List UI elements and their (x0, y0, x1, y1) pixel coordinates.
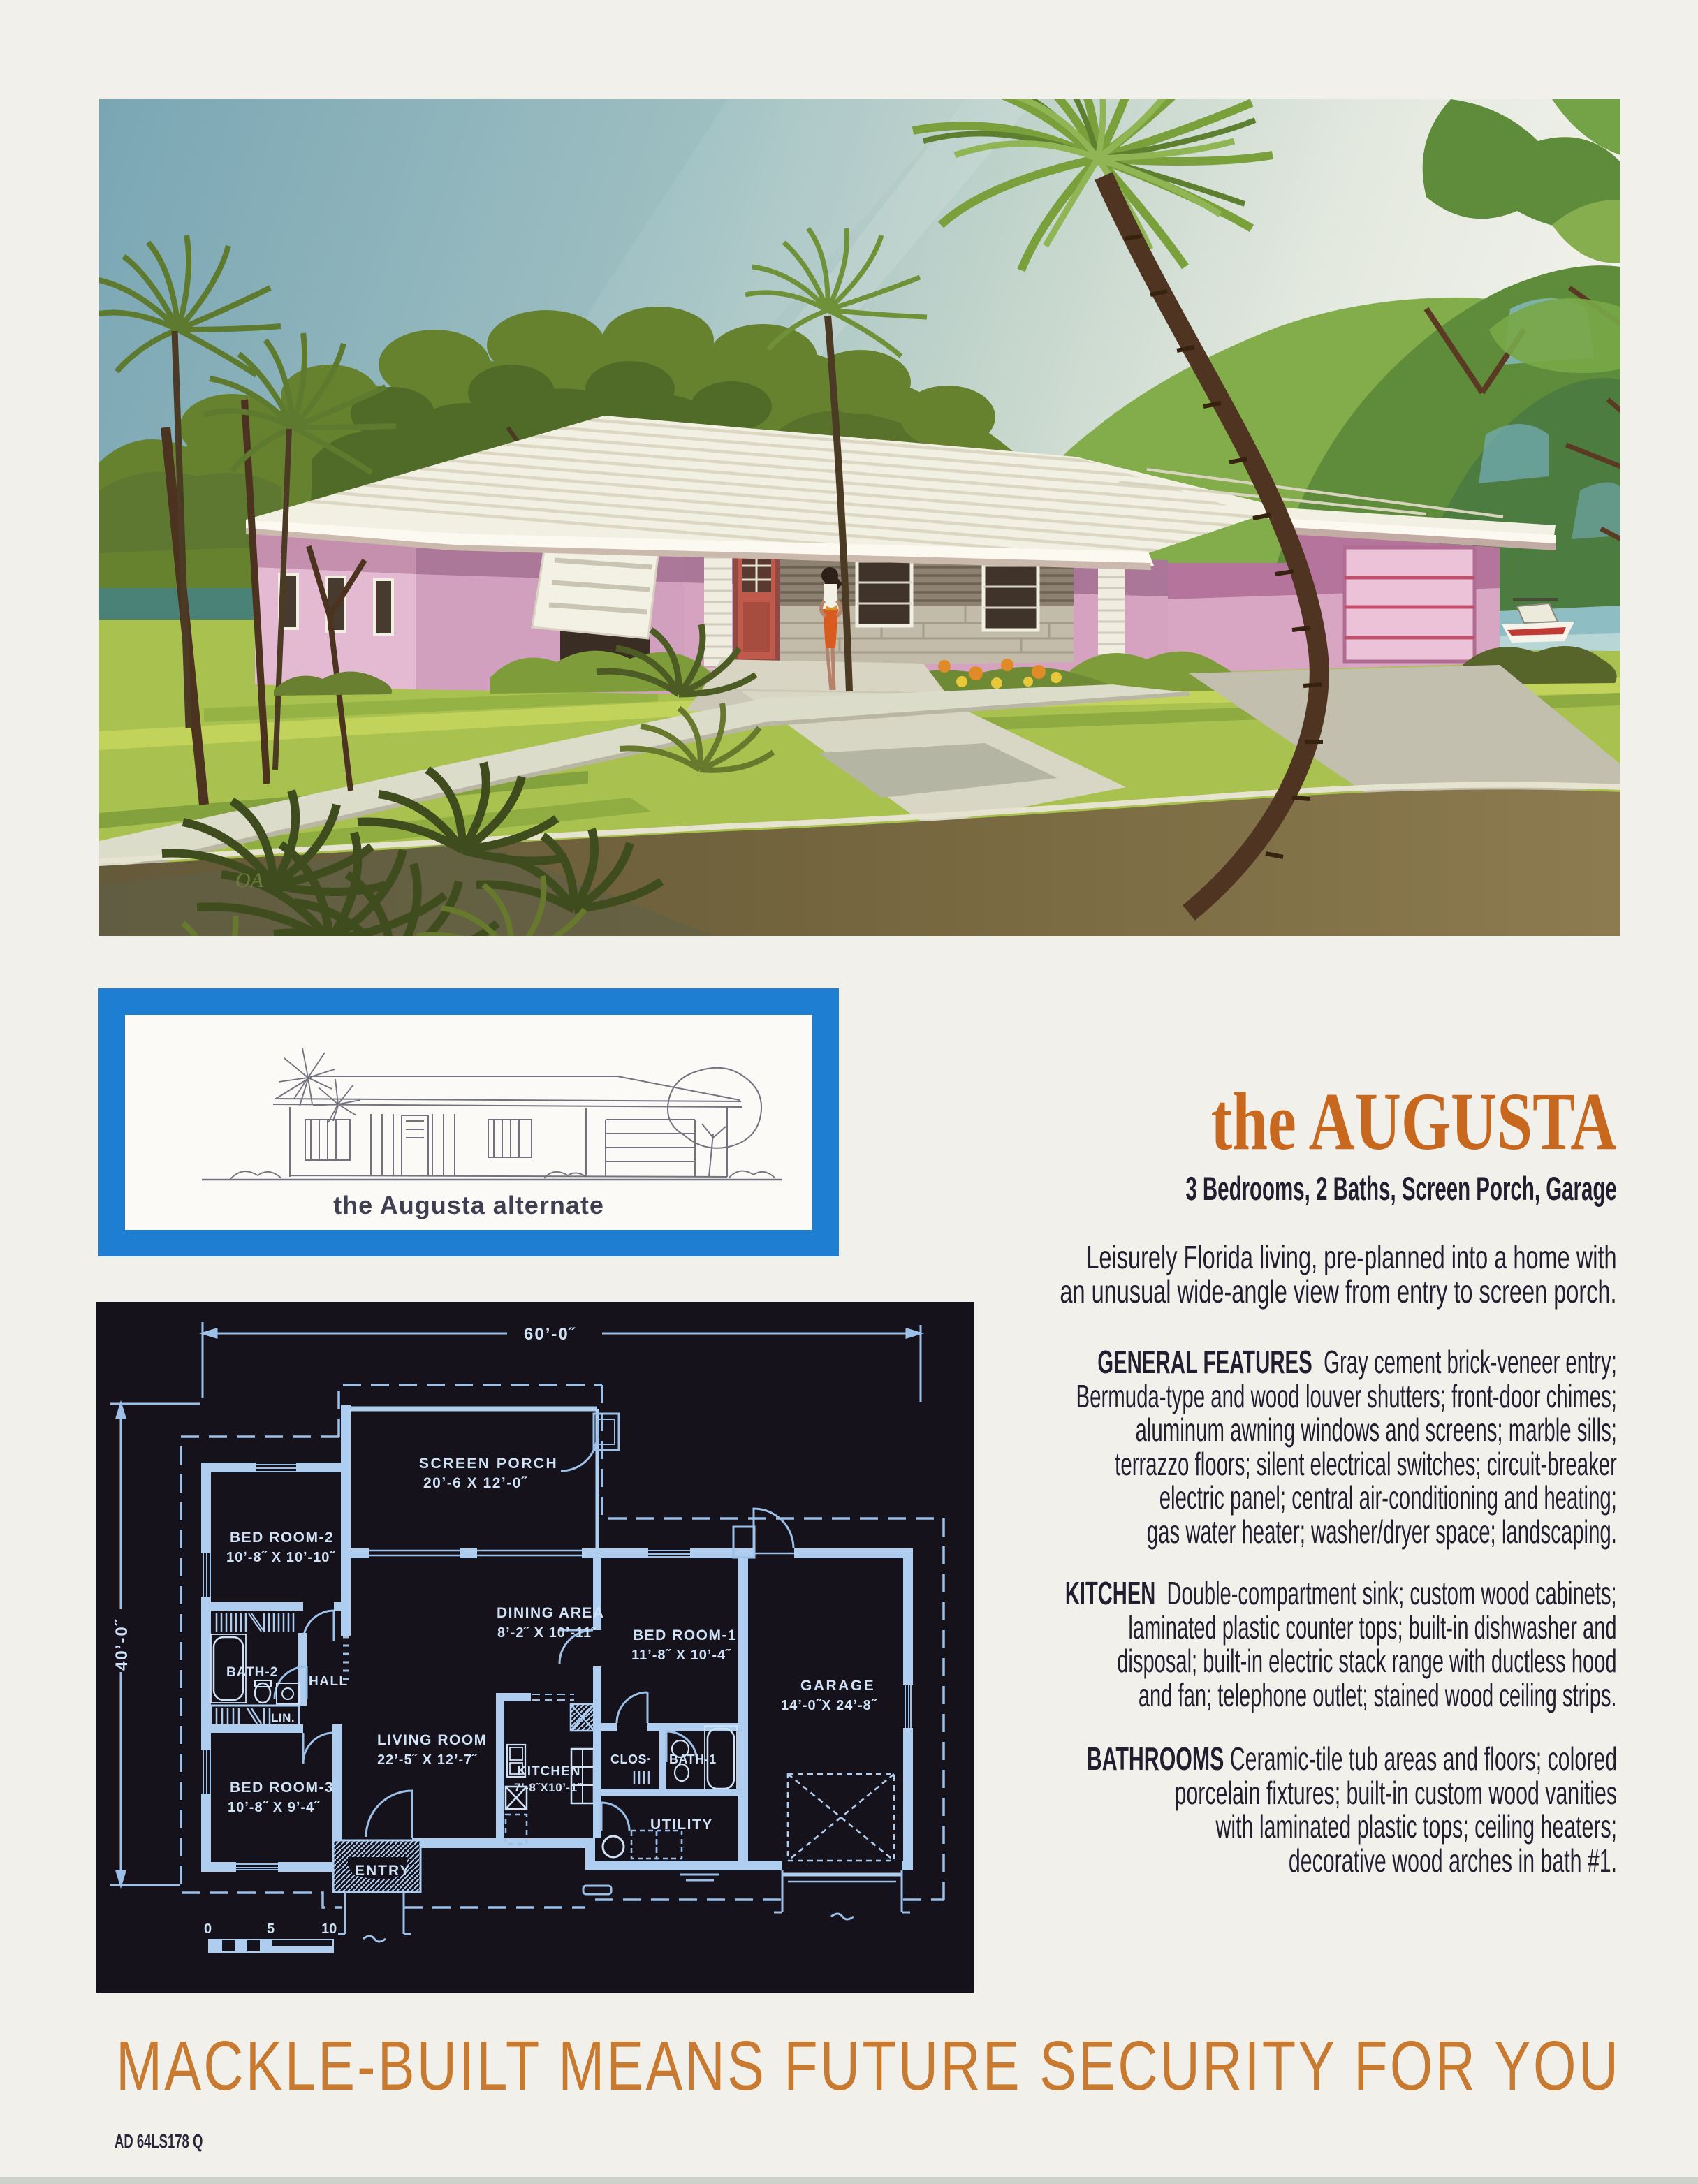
svg-text:14ʼ-0˝X 24ʼ-8˝: 14ʼ-0˝X 24ʼ-8˝ (781, 1698, 877, 1713)
svg-text:GARAGE: GARAGE (800, 1678, 875, 1694)
svg-text:LIVING ROOM: LIVING ROOM (377, 1732, 488, 1748)
svg-text:UTILITY: UTILITY (650, 1817, 713, 1833)
svg-text:10ʼ-8˝ X 9ʼ-4˝: 10ʼ-8˝ X 9ʼ-4˝ (228, 1800, 320, 1815)
svg-text:SCREEN PORCH: SCREEN PORCH (419, 1456, 558, 1472)
svg-text:BATH-1: BATH-1 (669, 1752, 717, 1766)
svg-text:10ʼ-8˝ X 10ʼ-10˝: 10ʼ-8˝ X 10ʼ-10˝ (226, 1550, 335, 1565)
svg-text:KITCHEN: KITCHEN (517, 1764, 580, 1779)
svg-text:BED ROOM-1: BED ROOM-1 (633, 1627, 737, 1643)
svg-text:ENTRY: ENTRY (355, 1863, 411, 1879)
svg-text:10: 10 (321, 1921, 337, 1937)
svg-text:11ʼ-8˝ X 10ʼ-4˝: 11ʼ-8˝ X 10ʼ-4˝ (631, 1648, 731, 1663)
svg-text:5: 5 (267, 1921, 275, 1937)
svg-text:40ʼ-0˝: 40ʼ-0˝ (112, 1618, 131, 1671)
svg-text:BATH-2: BATH-2 (226, 1665, 278, 1680)
svg-text:LIN.: LIN. (271, 1711, 295, 1724)
svg-text:CLOS·: CLOS· (610, 1752, 652, 1766)
svg-text:BED ROOM-2: BED ROOM-2 (230, 1530, 334, 1546)
svg-text:BED ROOM-3: BED ROOM-3 (230, 1780, 334, 1796)
svg-text:20ʼ-6 X 12ʼ-0˝: 20ʼ-6 X 12ʼ-0˝ (423, 1475, 527, 1491)
svg-text:8ʼ-2˝ X 10ʼ-11˝: 8ʼ-2˝ X 10ʼ-11˝ (497, 1625, 597, 1641)
svg-text:22ʼ-5˝ X 12ʼ-7˝: 22ʼ-5˝ X 12ʼ-7˝ (377, 1752, 478, 1768)
svg-text:DINING AREA: DINING AREA (497, 1605, 605, 1621)
svg-text:0: 0 (204, 1921, 212, 1937)
svg-text:60ʼ-0˝: 60ʼ-0˝ (524, 1325, 576, 1344)
svg-text:OA: OA (235, 869, 264, 892)
svg-text:HALL: HALL (309, 1674, 349, 1689)
svg-text:7ʼ-8˝X10ʼ-1˝: 7ʼ-8˝X10ʼ-1˝ (514, 1781, 583, 1794)
